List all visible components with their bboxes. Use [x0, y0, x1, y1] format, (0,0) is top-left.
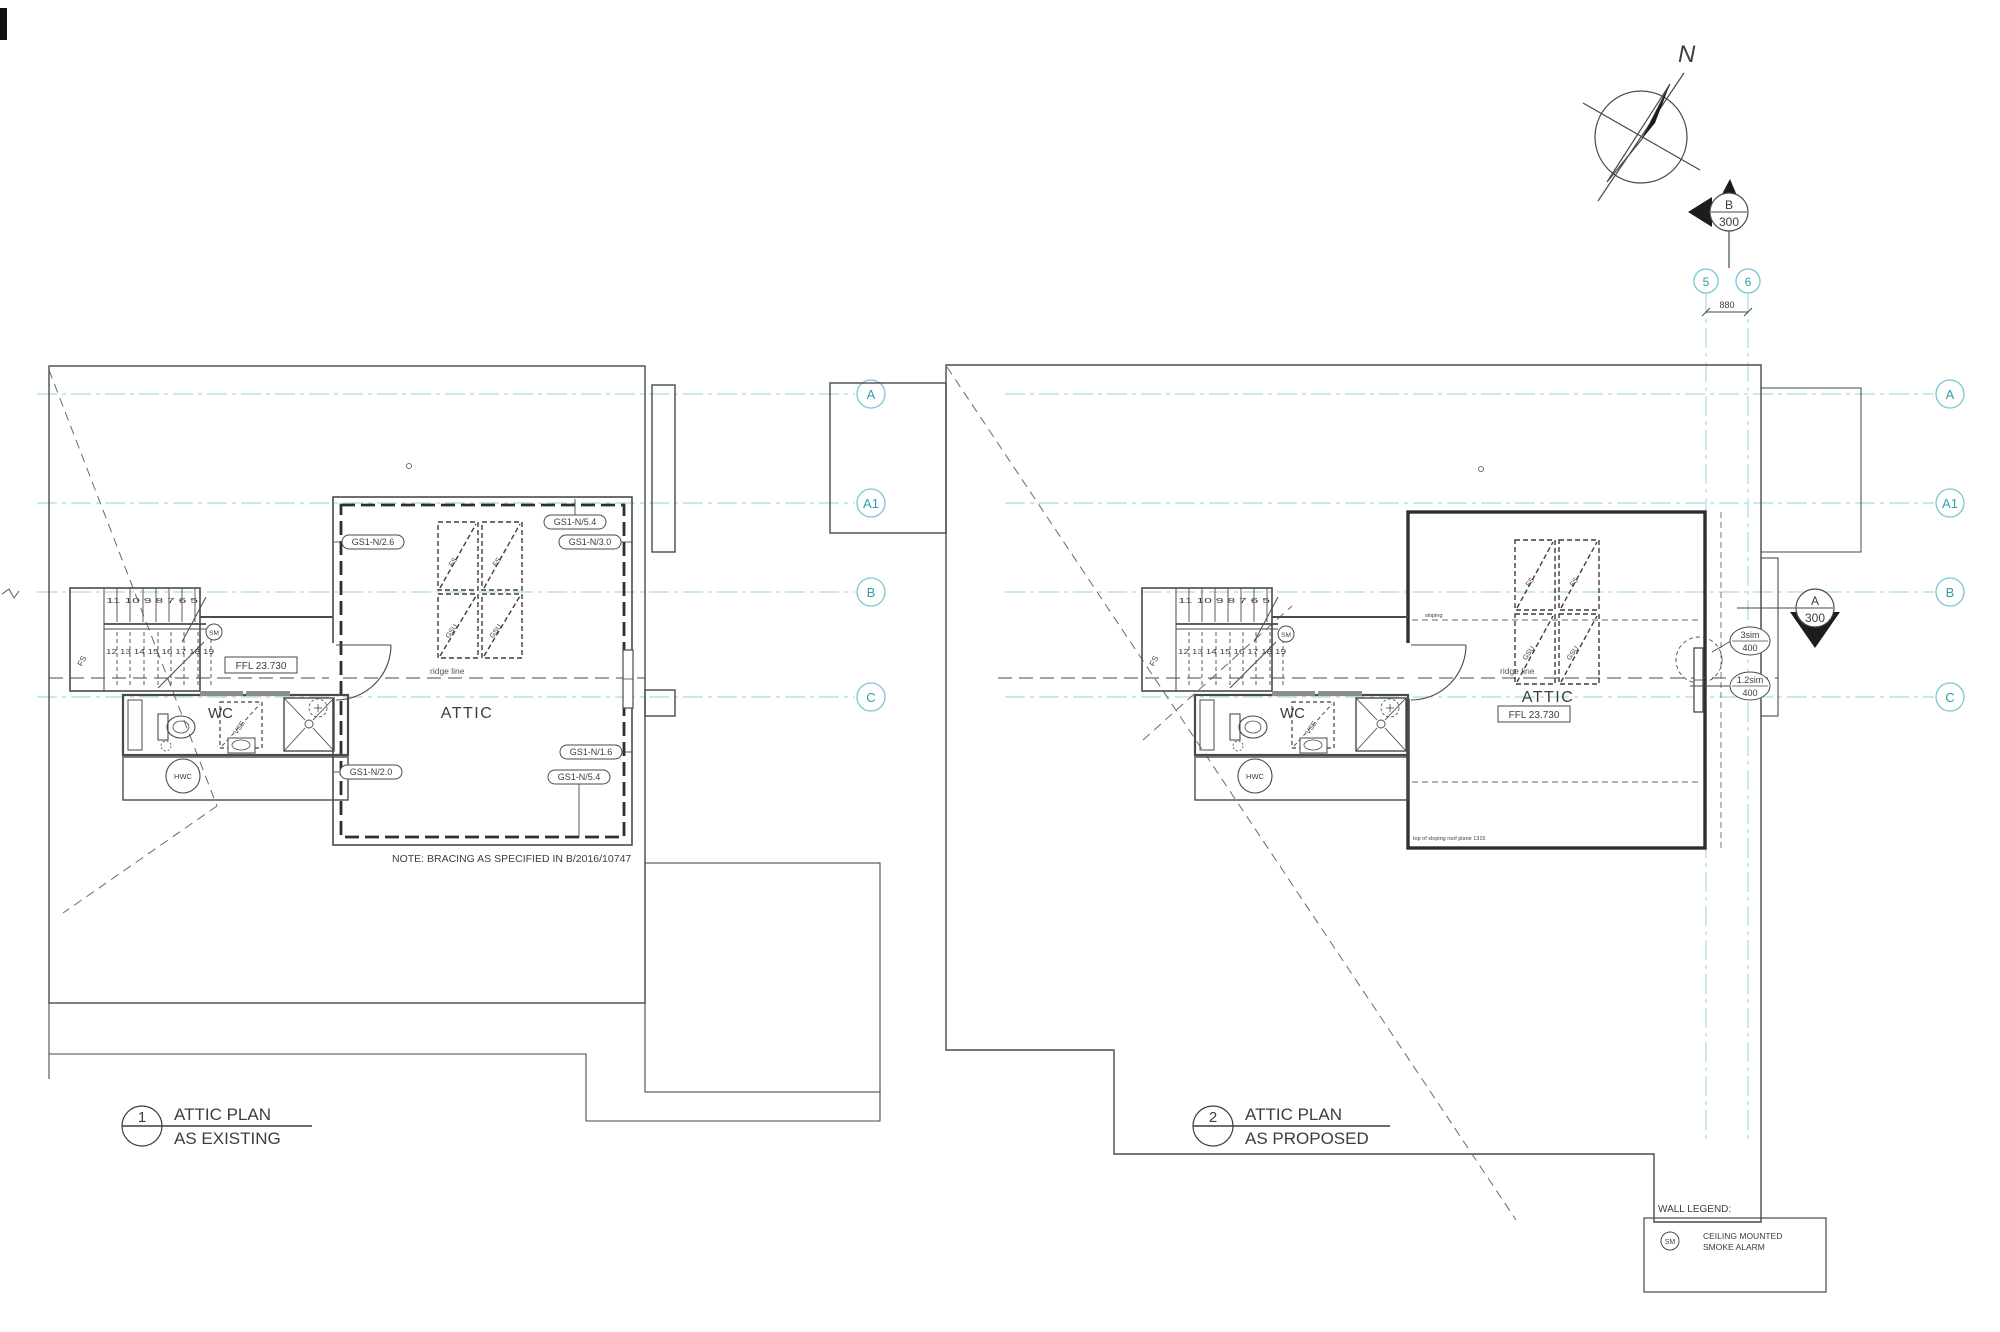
legend-sm-symbol: SM [1665, 1239, 1676, 1246]
title-line2: AS PROPOSED [1245, 1129, 1369, 1148]
grid-bubble-b-right: B [1946, 585, 1955, 600]
title-line1: ATTIC PLAN [174, 1105, 271, 1124]
dimension-880: 880 [1702, 300, 1752, 316]
skylight-label-gsu: GSU [489, 623, 503, 639]
vent-symbol [407, 464, 412, 469]
skylight-label-gsu: GSU [1522, 645, 1536, 661]
bracing-label: GS1-N/5.4 [558, 772, 601, 782]
stair: 11 10 9 8 7 6 5 12 13 14 15 16 17 18 19 … [70, 588, 214, 691]
grid-bubble-5: 5 [1703, 275, 1710, 289]
grid-bubble-c-right: C [1945, 690, 1954, 705]
proposed-window: 3sim 400 1.2sim 400 [1676, 627, 1770, 712]
wc-room: WC VSE [1195, 691, 1408, 755]
bracing-note: NOTE: BRACING AS SPECIFIED IN B/2016/107… [392, 853, 631, 865]
stair-numbers-bottom: 12 13 14 15 16 17 18 19 [106, 647, 214, 656]
bracing-label: GS1-N/5.4 [554, 517, 597, 527]
plate-note: top of sloping roof plane 1315 [1413, 836, 1485, 842]
bracing-label: GS1-N/2.6 [352, 537, 395, 547]
grid-bubbles-left: A A1 B C [857, 380, 885, 711]
marker-b-number: 300 [1719, 215, 1739, 229]
skylight-label-gsu: GSU [1566, 645, 1580, 661]
title-number: 2 [1209, 1109, 1217, 1126]
grid-bubbles-5-6: 5 6 [1694, 269, 1760, 293]
wc-skylight-label: VSE [233, 720, 247, 736]
pocket-door [1272, 691, 1315, 696]
attic-room-wall [1408, 512, 1705, 848]
stair-skylight-label: FS [1148, 654, 1161, 667]
north-label: N [1678, 41, 1696, 68]
legend-item-line2: SMOKE ALARM [1703, 1242, 1765, 1252]
left-plan: ridge line FS FS GSU GSU [49, 366, 880, 1121]
ridge-line-label: ridge line [430, 666, 465, 676]
stair-numbers-top: 11 10 9 8 7 6 5 [106, 596, 198, 605]
window-sim-label: 400 [1742, 643, 1757, 653]
grid-bubble-6: 6 [1745, 275, 1752, 289]
title-line2: AS EXISTING [174, 1129, 281, 1148]
window-symbol [623, 650, 633, 708]
pocket-door [200, 691, 243, 696]
ridge-line-label: ridge line [1500, 666, 1535, 676]
sheet-edge-mark [0, 8, 7, 40]
skylight-label-fs: FS [1569, 577, 1580, 589]
title-left: 1 ATTIC PLAN AS EXISTING [122, 1105, 312, 1148]
smoke-alarm-label: SM [1281, 632, 1291, 639]
skylights [1515, 540, 1599, 684]
skylight-label-gsu: GSU [445, 623, 459, 639]
hwc-cupboard: HWC [1195, 757, 1408, 800]
title-right: 2 ATTIC PLAN AS PROPOSED [1193, 1105, 1390, 1148]
wall-legend: WALL LEGEND: SM CEILING MOUNTED SMOKE AL… [1644, 1204, 1826, 1292]
section-marker-b: B 300 [1688, 179, 1748, 268]
attic-bracing-outline [341, 505, 624, 837]
wc-skylight-label: VSE [1305, 720, 1319, 736]
window-sim-label: 1.2sim [1737, 675, 1764, 685]
grid-bubble-c: C [866, 690, 875, 705]
ffl-label: FFL 23.730 [236, 661, 287, 672]
grid-bubble-a1-right: A1 [1942, 496, 1958, 511]
room-label-attic: ATTIC [1522, 689, 1575, 706]
vent-symbol [1479, 467, 1484, 472]
wc-room: WC VSE [123, 691, 348, 755]
window-sim-label: 400 [1742, 688, 1757, 698]
grid-bubble-a1: A1 [863, 496, 879, 511]
hwc-label: HWC [174, 772, 192, 781]
grid-lines [37, 294, 1934, 1140]
drawing-sheet: A A1 B C A A1 B C 5 6 880 N [0, 0, 2000, 1332]
attic-door [336, 645, 391, 700]
pocket-door [1318, 691, 1362, 696]
title-number: 1 [138, 1109, 146, 1126]
title-line1: ATTIC PLAN [1245, 1105, 1342, 1124]
marker-b-letter: B [1725, 198, 1733, 212]
room-label-attic: ATTIC [441, 705, 494, 722]
marker-a-letter: A [1811, 594, 1819, 608]
grid-bubble-a: A [867, 387, 876, 402]
bracing-label: GS1-N/2.0 [350, 767, 393, 777]
smoke-alarm-label: SM [209, 630, 219, 637]
attic-door [1411, 645, 1466, 700]
grid-bubble-b: B [867, 585, 876, 600]
bracing-label: GS1-N/1.6 [570, 747, 613, 757]
ffl-label: FFL 23.730 [1509, 710, 1560, 721]
stair-numbers-top: 11 10 9 8 7 6 5 [1178, 596, 1270, 605]
sheet-edge-squiggle [2, 589, 19, 598]
legend-item-line1: CEILING MOUNTED [1703, 1231, 1782, 1241]
dim-880-text: 880 [1719, 300, 1734, 310]
stair-skylight-label: FS [76, 654, 89, 667]
hwc-label: HWC [1246, 772, 1264, 781]
grid-bubbles-right: A A1 B C [1936, 380, 1964, 711]
legend-title: WALL LEGEND: [1658, 1204, 1731, 1215]
hwc-cupboard: HWC [123, 757, 348, 800]
skylight-label-fs: FS [1525, 577, 1536, 589]
sloping-note: sloping [1425, 613, 1442, 619]
grid-bubble-a-right: A [1946, 387, 1955, 402]
window-sim-label: 3sim [1740, 630, 1759, 640]
stair-numbers-bottom: 12 13 14 15 16 17 18 19 [1178, 647, 1286, 656]
north-arrow: N [1583, 41, 1700, 201]
pocket-door [246, 691, 290, 696]
marker-a-number: 300 [1805, 611, 1825, 625]
bracing-label: GS1-N/3.0 [569, 537, 612, 547]
